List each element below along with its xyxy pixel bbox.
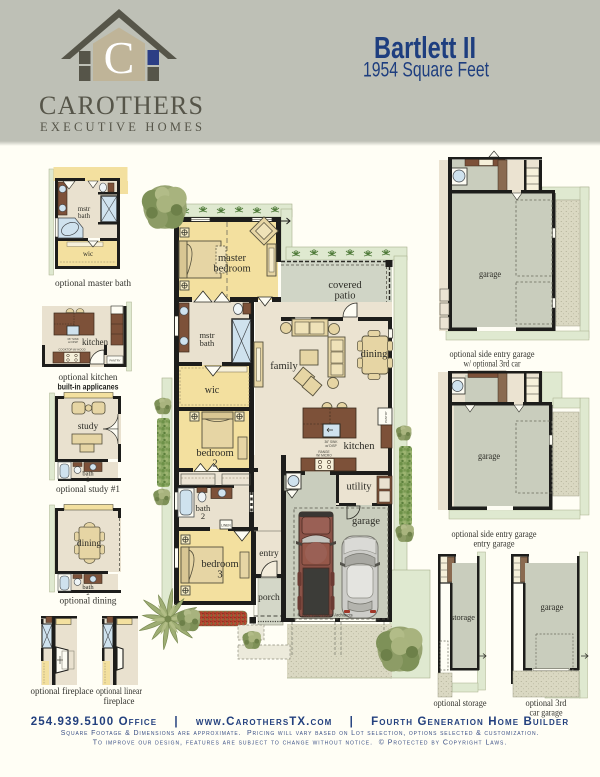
svg-text:entry: entry <box>259 549 279 559</box>
svg-text:master: master <box>218 253 246 264</box>
svg-text:2: 2 <box>201 511 205 521</box>
svg-text:bedroom: bedroom <box>201 559 238 570</box>
svg-text:study: study <box>78 422 99 432</box>
svg-text:bath: bath <box>78 212 91 220</box>
svg-text:fireplace: fireplace <box>104 696 136 707</box>
svg-text:bedroom: bedroom <box>196 448 233 459</box>
svg-text:CAROTHERS: CAROTHERS <box>39 91 203 120</box>
svg-text:COOKTOP W/ HOOD: COOKTOP W/ HOOD <box>58 348 85 352</box>
svg-text:PANTRY: PANTRY <box>384 411 388 423</box>
svg-text:garage: garage <box>479 269 501 279</box>
svg-text:patio: patio <box>335 291 356 302</box>
svg-text:optional dining: optional dining <box>60 596 117 607</box>
svg-text:PANTRY: PANTRY <box>109 359 120 363</box>
svg-text:optional storage: optional storage <box>434 698 488 709</box>
svg-text:1954 Square Feet: 1954 Square Feet <box>363 59 489 82</box>
svg-text:optional kitchen: optional kitchen <box>59 372 118 383</box>
svg-text:garage: garage <box>478 451 500 461</box>
svg-text:W/ MICRO: W/ MICRO <box>316 454 332 458</box>
svg-text:254.939.5100 Office | ww: 254.939.5100 Office | www.CarothersTX.co… <box>31 716 569 728</box>
svg-text:LINEN: LINEN <box>221 524 231 528</box>
svg-text:Square Footage & Dimensions ar: Square Footage & Dimensions are approxim… <box>61 730 539 737</box>
svg-text:family: family <box>270 361 298 372</box>
svg-text:2: 2 <box>212 459 217 470</box>
svg-text:kitchen: kitchen <box>344 441 376 452</box>
svg-text:w/ DISP: w/ DISP <box>325 444 337 448</box>
svg-text:utility: utility <box>346 482 372 493</box>
svg-text:wic: wic <box>205 385 220 396</box>
svg-text:bedroom: bedroom <box>213 264 250 275</box>
svg-text:optional study #1: optional study #1 <box>56 484 120 495</box>
svg-text:2: 2 <box>86 477 89 484</box>
svg-text:garage: garage <box>352 516 380 527</box>
svg-text:C: C <box>104 32 135 83</box>
svg-text:3: 3 <box>217 570 222 581</box>
svg-text:optional fireplace: optional fireplace <box>31 686 95 697</box>
svg-text:dining: dining <box>361 349 389 360</box>
svg-text:wic: wic <box>83 250 93 258</box>
svg-text:optional master bath: optional master bath <box>55 278 131 289</box>
svg-text:garage: garage <box>541 602 564 612</box>
svg-text:porch: porch <box>258 593 280 603</box>
svg-text:w/ DISP: w/ DISP <box>68 340 78 344</box>
svg-text:w/ optional 3rd car: w/ optional 3rd car <box>464 359 522 370</box>
svg-text:dining: dining <box>77 539 102 549</box>
svg-text:To improve our design, feature: To improve our design, features are subj… <box>93 739 508 747</box>
svg-text:entry garage: entry garage <box>474 539 516 550</box>
svg-text:built-in applicanes: built-in applicanes <box>58 383 119 392</box>
svg-text:© 2007 Kipp Flores Architects: © 2007 Kipp Flores Architects <box>297 613 352 618</box>
svg-text:storage: storage <box>451 612 475 622</box>
svg-text:covered: covered <box>328 280 362 291</box>
svg-text:EXECUTIVE HOMES: EXECUTIVE HOMES <box>40 120 202 134</box>
svg-text:bath: bath <box>200 338 215 348</box>
